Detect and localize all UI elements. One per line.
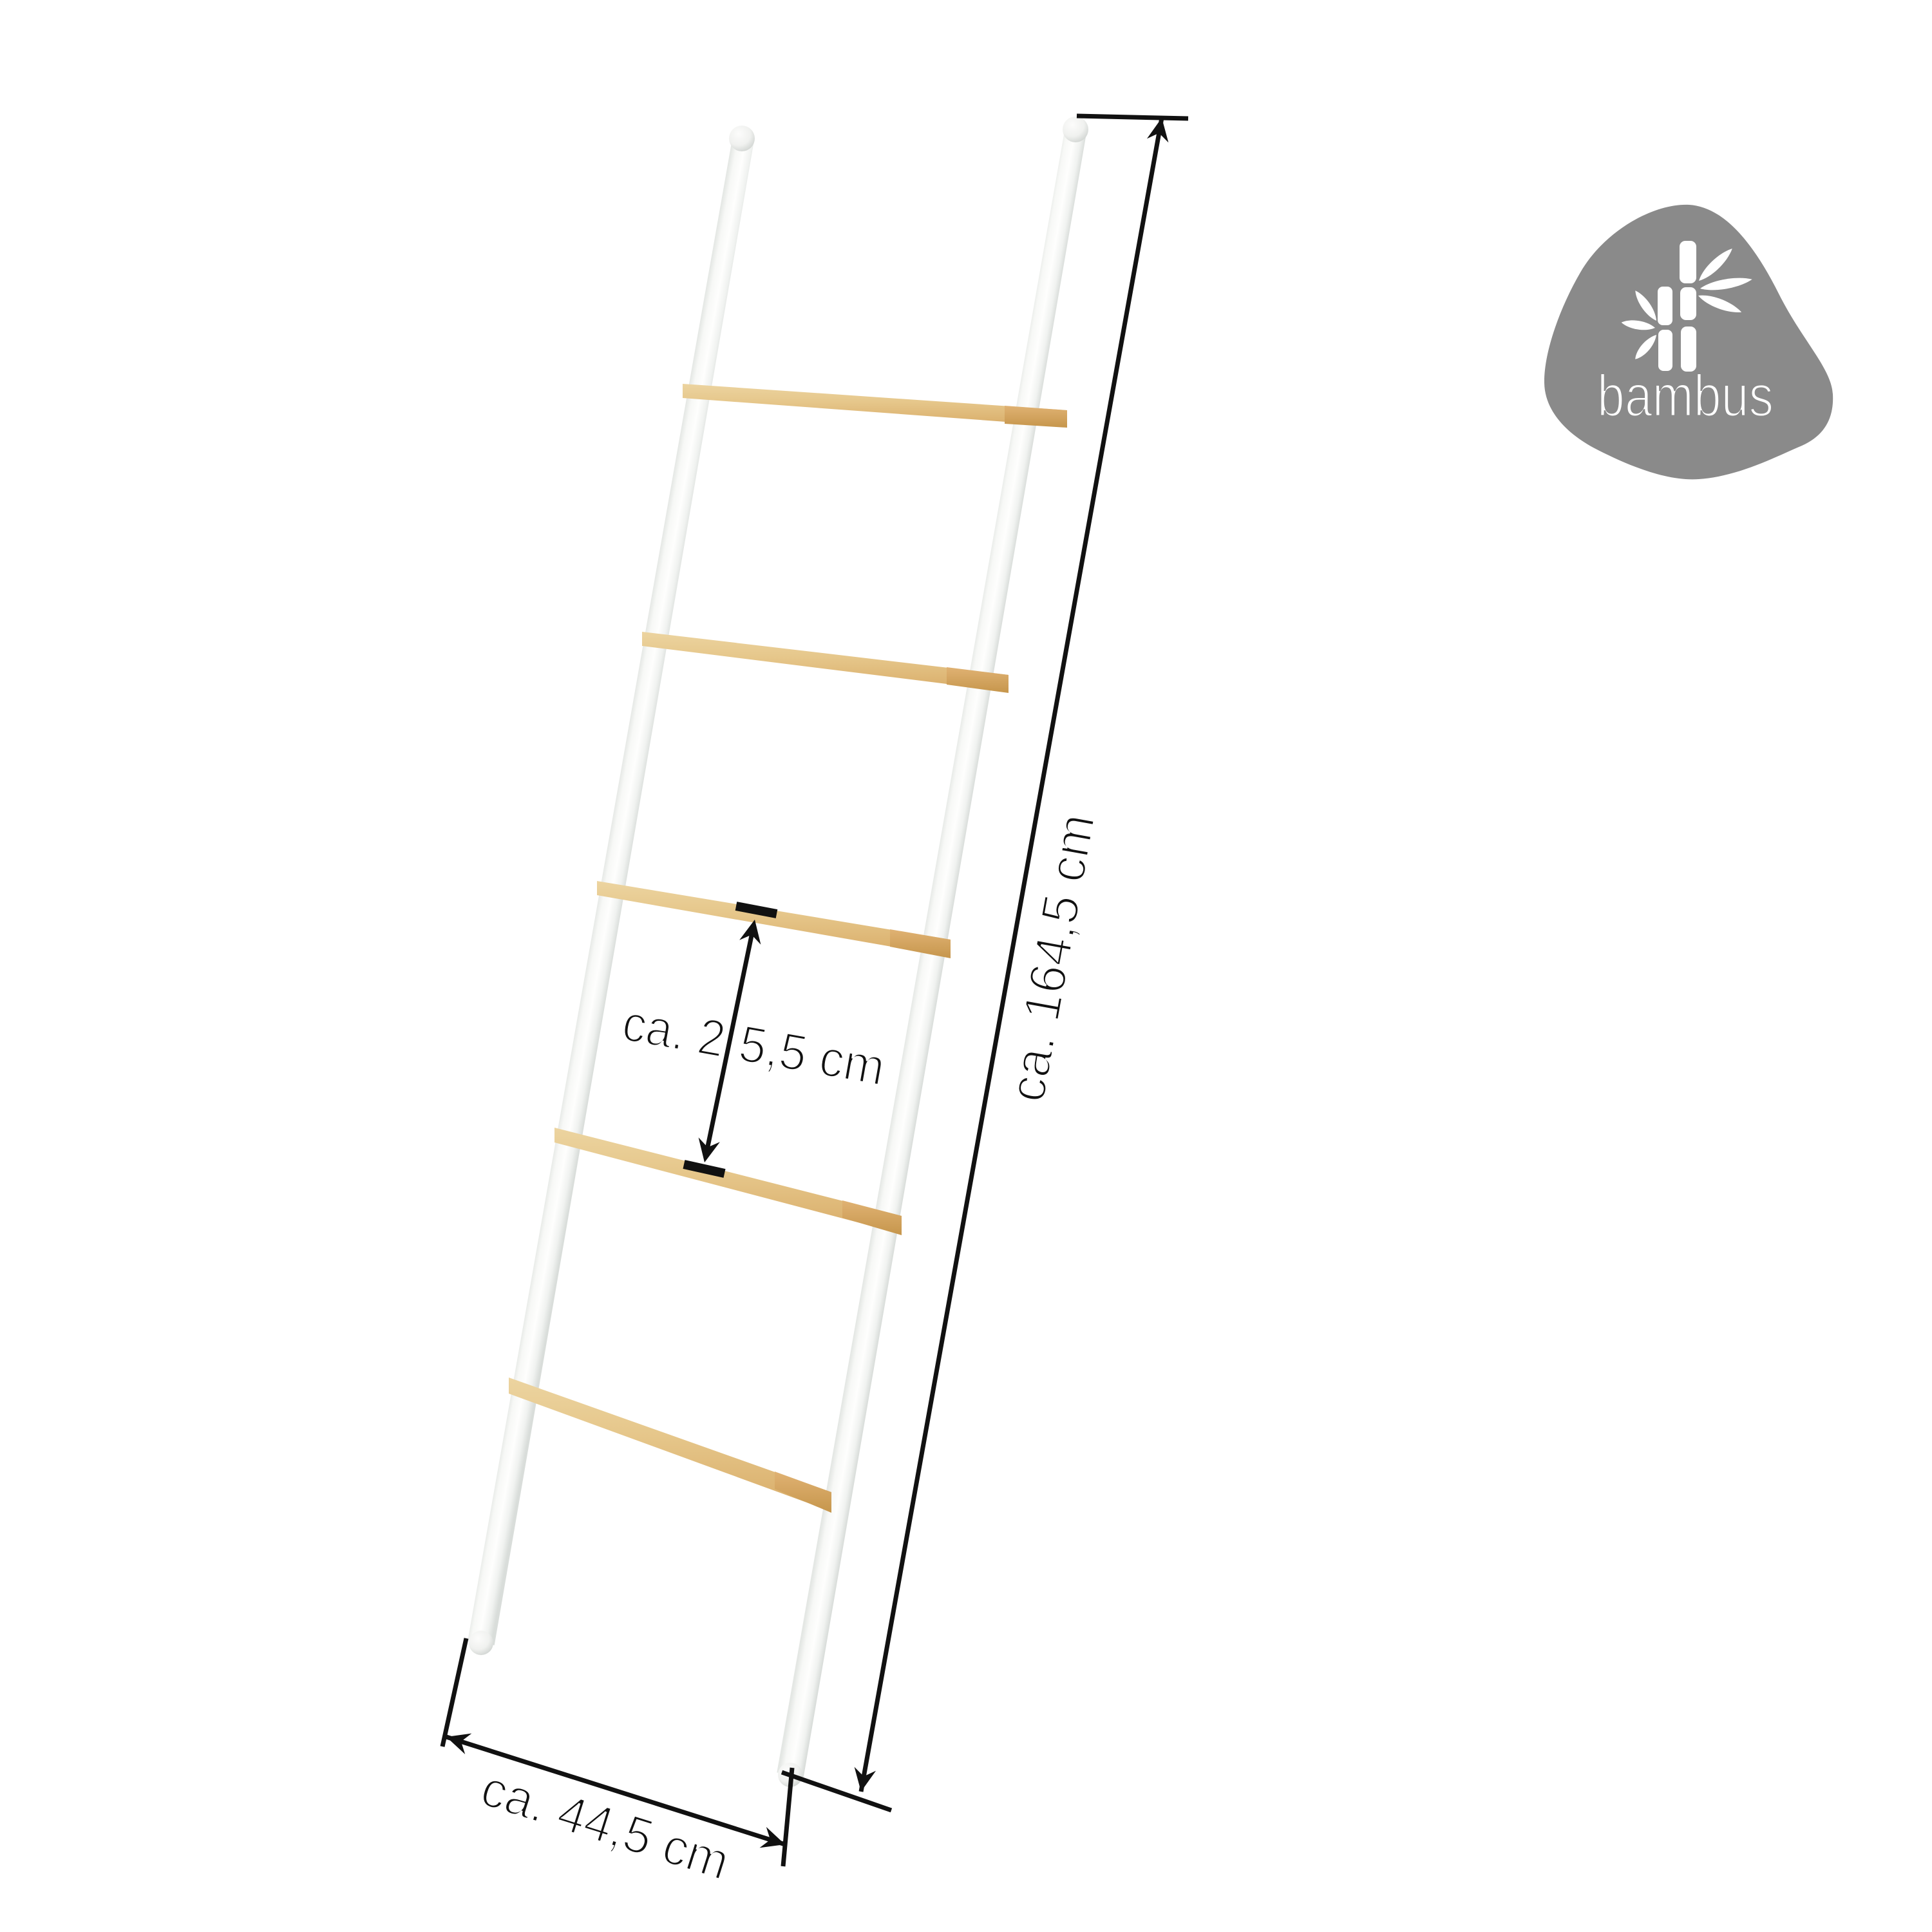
- svg-text:bambus: bambus: [1597, 363, 1774, 429]
